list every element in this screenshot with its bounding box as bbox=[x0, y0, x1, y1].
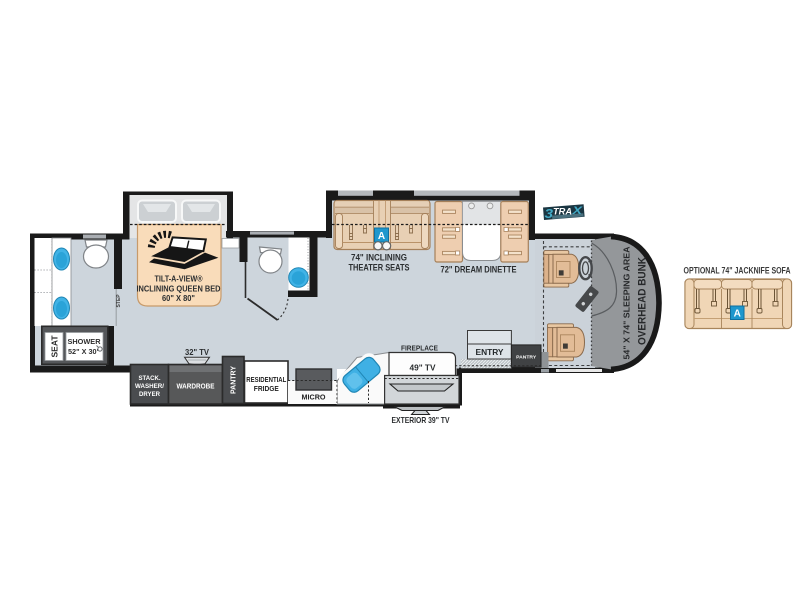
svg-text:PANTRY: PANTRY bbox=[229, 366, 238, 394]
svg-text:TILT-A-VIEW®: TILT-A-VIEW® bbox=[155, 275, 203, 284]
svg-text:SHOWER: SHOWER bbox=[68, 337, 102, 346]
svg-text:MICRO: MICRO bbox=[302, 393, 326, 402]
svg-text:FIREPLACE: FIREPLACE bbox=[401, 344, 438, 353]
svg-text:PANTRY: PANTRY bbox=[516, 355, 536, 360]
svg-text:A: A bbox=[378, 231, 385, 242]
svg-text:DRYER: DRYER bbox=[139, 391, 160, 398]
svg-text:ENTRY: ENTRY bbox=[476, 348, 505, 357]
svg-text:A: A bbox=[734, 309, 741, 320]
svg-text:STEP: STEP bbox=[116, 294, 122, 308]
svg-text:60" X 80": 60" X 80" bbox=[162, 294, 195, 303]
svg-text:OPTIONAL 74" JACKNIFE SOFA: OPTIONAL 74" JACKNIFE SOFA bbox=[684, 265, 791, 276]
svg-text:WARDROBE: WARDROBE bbox=[177, 382, 215, 391]
svg-text:32" TV: 32" TV bbox=[185, 348, 210, 357]
svg-text:INCLINING QUEEN BED: INCLINING QUEEN BED bbox=[137, 284, 221, 293]
svg-text:EXTERIOR 39" TV: EXTERIOR 39" TV bbox=[392, 415, 450, 425]
svg-text:FRIDGE: FRIDGE bbox=[254, 384, 279, 393]
svg-text:STACK.: STACK. bbox=[139, 375, 161, 382]
svg-text:52" X 30": 52" X 30" bbox=[68, 347, 100, 356]
svg-text:X: X bbox=[571, 205, 583, 217]
svg-text:54" X 74" SLEEPING AREA: 54" X 74" SLEEPING AREA bbox=[623, 246, 632, 359]
svg-text:TRA: TRA bbox=[553, 207, 572, 218]
svg-text:WASHER/: WASHER/ bbox=[135, 383, 164, 390]
svg-text:RESIDENTIAL: RESIDENTIAL bbox=[246, 375, 287, 384]
svg-text:49" TV: 49" TV bbox=[410, 363, 436, 373]
svg-text:3: 3 bbox=[545, 207, 554, 221]
svg-text:74" INCLINING: 74" INCLINING bbox=[351, 253, 407, 263]
svg-text:72" DREAM DINETTE: 72" DREAM DINETTE bbox=[441, 265, 517, 275]
svg-text:OVERHEAD BUNK: OVERHEAD BUNK bbox=[637, 257, 649, 345]
svg-text:THEATER SEATS: THEATER SEATS bbox=[349, 263, 410, 273]
svg-text:SEAT: SEAT bbox=[51, 335, 60, 357]
